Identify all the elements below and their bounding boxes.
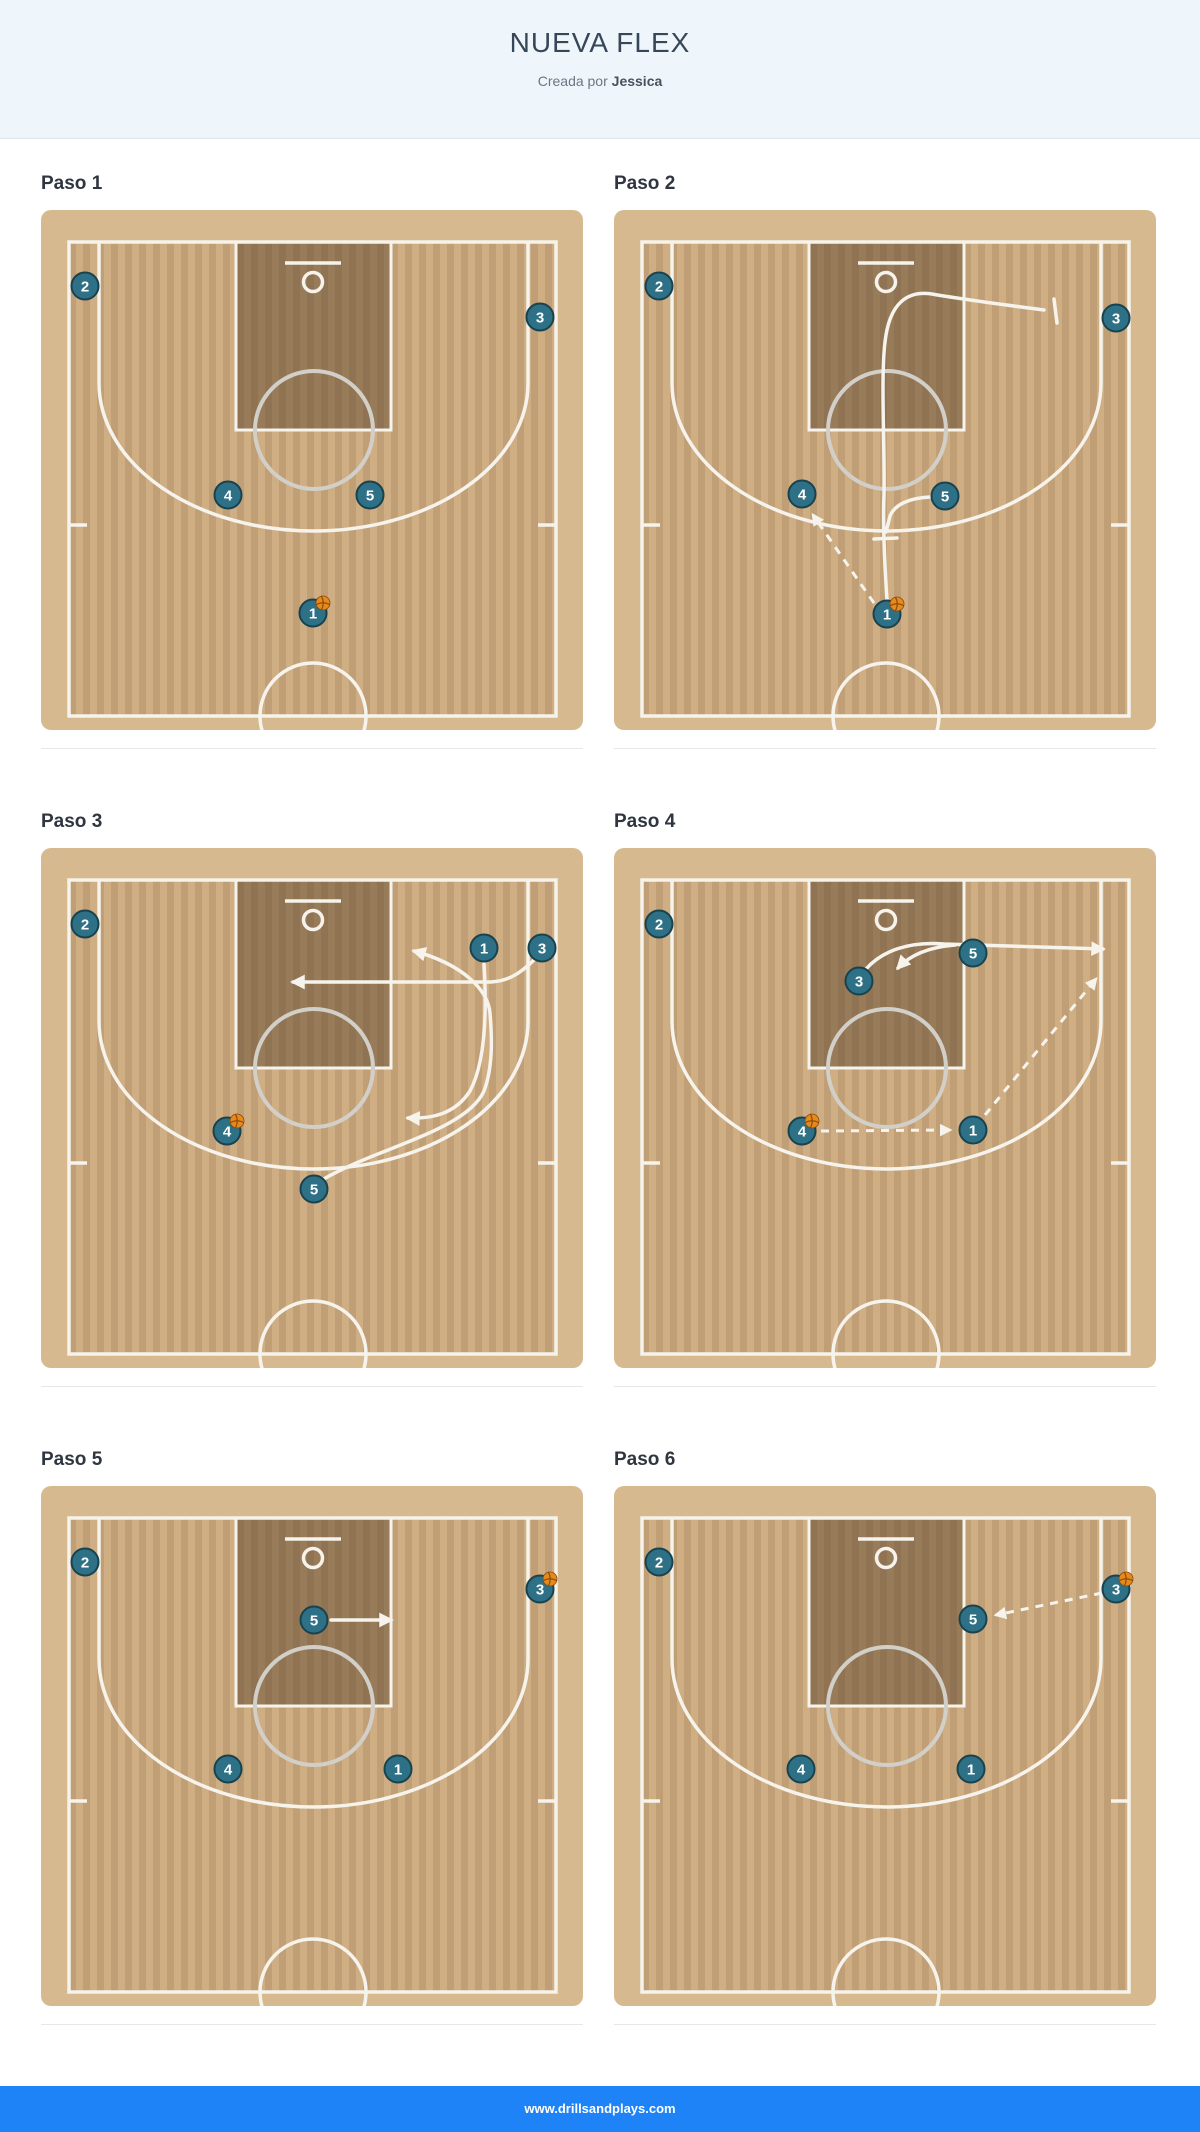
player-token-4: 4 [788,1756,815,1783]
svg-text:5: 5 [969,946,977,963]
court-diagram-5: 2 3 5 4 1 [41,1486,583,2006]
player-token-3: 3 [1103,305,1130,332]
svg-text:1: 1 [883,607,891,624]
svg-text:4: 4 [223,1124,232,1141]
step-6-title: Paso 6 [614,1449,1156,1470]
svg-text:4: 4 [224,488,233,505]
svg-text:2: 2 [81,917,89,934]
basketball-icon [805,1114,819,1128]
player-token-2: 2 [72,911,99,938]
divider [614,748,1156,749]
author-name: Jessica [612,73,663,89]
player-token-2: 2 [72,273,99,300]
svg-text:1: 1 [967,1762,975,1779]
page-subtitle: Creada por Jessica [0,73,1200,89]
svg-text:4: 4 [797,1762,806,1779]
divider [41,2024,583,2025]
divider [614,2024,1156,2025]
svg-text:4: 4 [798,487,807,504]
player-token-5: 5 [932,483,959,510]
player-token-5: 5 [301,1176,328,1203]
svg-text:4: 4 [798,1124,807,1141]
svg-text:1: 1 [309,606,317,623]
svg-text:3: 3 [536,310,544,327]
player-token-3: 3 [846,968,873,995]
player-token-2: 2 [646,911,673,938]
player-token-1: 1 [385,1756,412,1783]
basketball-icon [890,597,904,611]
pass-line [821,1130,950,1131]
svg-text:5: 5 [941,489,949,506]
svg-text:5: 5 [310,1182,318,1199]
step-3-title: Paso 3 [41,811,583,832]
svg-text:3: 3 [1112,311,1120,328]
divider [614,1386,1156,1387]
subtitle-prefix: Creada por [538,73,608,89]
step-5: Paso 5 2 3 5 4 [41,1449,583,2025]
player-token-2: 2 [646,1549,673,1576]
step-5-title: Paso 5 [41,1449,583,1470]
app: { "header": { "title": "NUEVA FLEX", "su… [0,0,1200,2132]
step-2-title: Paso 2 [614,173,1156,194]
svg-text:3: 3 [1112,1582,1120,1599]
step-1-title: Paso 1 [41,173,583,194]
page-footer: www.drillsandplays.com [0,2086,1200,2132]
svg-text:3: 3 [536,1582,544,1599]
svg-text:2: 2 [81,279,89,296]
page-header: NUEVA FLEX Creada por Jessica [0,0,1200,139]
player-token-5: 5 [301,1607,328,1634]
divider [41,748,583,749]
court-diagram-4: 2 3 5 4 1 [614,848,1156,1368]
player-token-5: 5 [357,482,384,509]
player-token-1: 1 [471,935,498,962]
step-4-title: Paso 4 [614,811,1156,832]
step-2: Paso 2 2 3 4 5 1 [614,173,1156,749]
player-token-2: 2 [72,1549,99,1576]
player-token-1: 1 [958,1756,985,1783]
step-6: Paso 6 2 3 5 4 [614,1449,1156,2025]
svg-text:1: 1 [394,1762,402,1779]
steps-grid: Paso 1 2 3 4 5 1 [0,139,1200,2025]
svg-text:5: 5 [366,488,374,505]
svg-text:2: 2 [655,1555,663,1572]
screen-bar [874,538,897,539]
basketball-icon [316,596,330,610]
court-diagram-6: 2 3 5 4 1 [614,1486,1156,2006]
court-diagram-3: 2 1 3 4 5 [41,848,583,1368]
player-token-4: 4 [215,482,242,509]
basketball-icon [230,1114,244,1128]
svg-text:1: 1 [480,941,488,958]
svg-text:4: 4 [224,1762,233,1779]
svg-text:3: 3 [538,941,546,958]
player-token-5: 5 [960,940,987,967]
svg-text:5: 5 [969,1612,977,1629]
player-token-4: 4 [215,1756,242,1783]
court-diagram-2: 2 3 4 5 1 [614,210,1156,730]
svg-text:2: 2 [81,1555,89,1572]
player-token-4: 4 [789,481,816,508]
basketball-icon [1119,1572,1133,1586]
step-1: Paso 1 2 3 4 5 1 [41,173,583,749]
svg-text:1: 1 [969,1123,977,1140]
player-token-2: 2 [646,273,673,300]
divider [41,1386,583,1387]
step-3: Paso 3 2 1 3 4 [41,811,583,1387]
footer-link[interactable]: www.drillsandplays.com [524,2101,675,2116]
player-token-3: 3 [529,935,556,962]
svg-text:2: 2 [655,917,663,934]
court-diagram-1: 2 3 4 5 1 [41,210,583,730]
basketball-icon [543,1572,557,1586]
svg-text:2: 2 [655,279,663,296]
step-4: Paso 4 2 3 5 4 [614,811,1156,1387]
svg-text:5: 5 [310,1613,318,1630]
svg-text:3: 3 [855,974,863,991]
player-token-3: 3 [527,304,554,331]
player-token-1: 1 [960,1117,987,1144]
page-title: NUEVA FLEX [0,27,1200,59]
player-token-5: 5 [960,1606,987,1633]
